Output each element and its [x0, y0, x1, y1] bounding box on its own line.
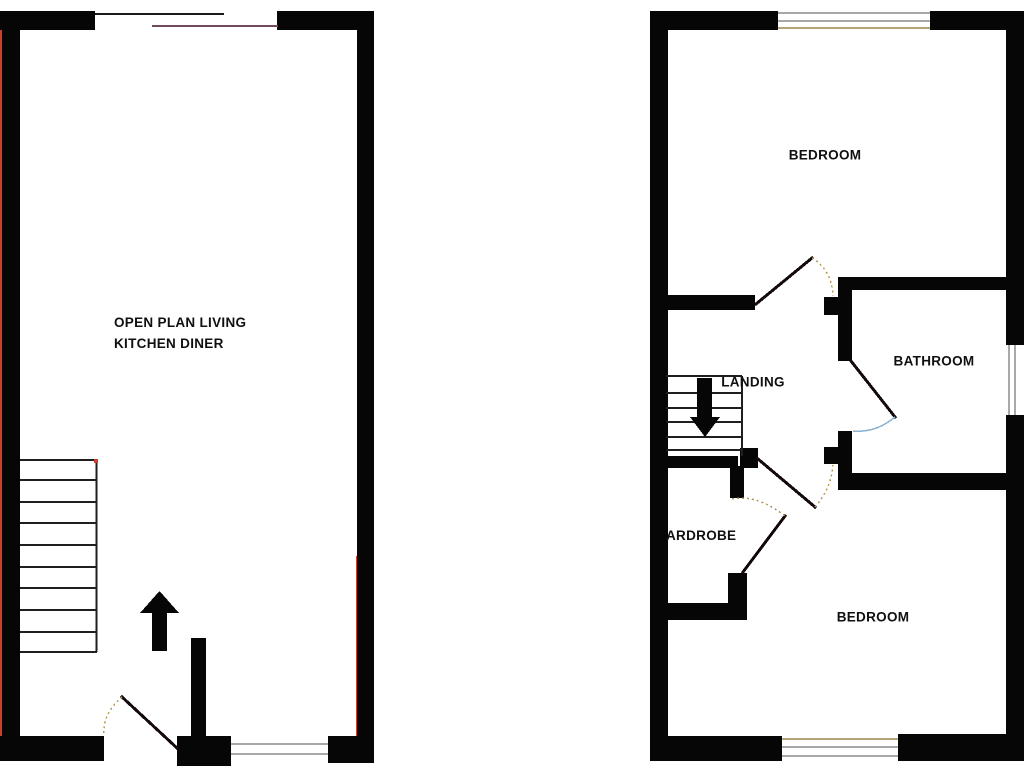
door-jamb	[824, 447, 838, 464]
window	[782, 738, 898, 740]
window	[782, 746, 898, 748]
floorplan-canvas: OPEN PLAN LIVING KITCHEN DINER BEDROOM B…	[0, 0, 1024, 768]
room-label-wardrobe: ARDROBE	[666, 528, 736, 543]
wall	[1006, 11, 1024, 345]
partition-wall	[650, 603, 745, 620]
stairs-up-arrow-icon	[140, 591, 179, 613]
partition-wall	[838, 473, 1008, 490]
wall	[898, 734, 1024, 761]
wall	[357, 11, 374, 761]
door-leaf	[743, 516, 785, 572]
wall	[2, 11, 20, 761]
stairs-down-arrow-icon	[690, 417, 720, 437]
wall	[650, 736, 782, 761]
partition-wall	[730, 466, 744, 498]
door-swing-arc	[732, 498, 785, 516]
wall	[930, 11, 1008, 30]
window	[778, 27, 930, 29]
floorplan-drawing	[0, 0, 1024, 768]
partition-wall	[650, 295, 755, 310]
door-leaf	[122, 697, 177, 748]
partition-wall	[838, 277, 1008, 290]
door-leaf	[758, 459, 815, 507]
boundary-line	[95, 13, 224, 15]
wall	[650, 11, 668, 761]
door-leaf	[851, 361, 895, 417]
window	[231, 753, 328, 755]
partition-wall	[838, 277, 852, 361]
wall	[328, 736, 374, 763]
stairs-down-arrow-icon	[697, 378, 712, 418]
window	[782, 755, 898, 757]
partition-wall	[650, 456, 738, 468]
window	[231, 743, 328, 745]
room-label-kitchen-diner: KITCHEN DINER	[114, 336, 224, 351]
wall	[177, 736, 231, 766]
door-swing-arc	[815, 465, 833, 507]
door-jamb	[824, 297, 838, 315]
room-label-bedroom-front: BEDROOM	[789, 148, 862, 163]
wall	[1006, 415, 1024, 761]
wall	[650, 11, 778, 30]
window	[1008, 345, 1010, 415]
room-label-landing: LANDING	[721, 375, 785, 390]
first-floor-plan	[650, 11, 1024, 761]
window	[1014, 345, 1016, 415]
stairs-up-arrow-icon	[152, 611, 167, 651]
window	[778, 12, 930, 14]
room-label-bedroom-back: BEDROOM	[837, 610, 910, 625]
boundary-line-purple	[152, 25, 278, 27]
stair-red-tick	[94, 459, 98, 463]
room-label-open-plan-living: OPEN PLAN LIVING	[114, 315, 246, 330]
room-label-bathroom: BATHROOM	[894, 354, 975, 369]
partition-wall	[191, 638, 206, 738]
door-swing-arc	[853, 417, 895, 431]
window	[778, 20, 930, 22]
door-swing-arc	[104, 697, 122, 736]
door-leaf	[756, 258, 812, 304]
ground-floor-plan	[0, 11, 374, 766]
door-swing-arc	[812, 258, 833, 296]
staircase-up	[20, 459, 179, 652]
wall	[0, 736, 104, 761]
